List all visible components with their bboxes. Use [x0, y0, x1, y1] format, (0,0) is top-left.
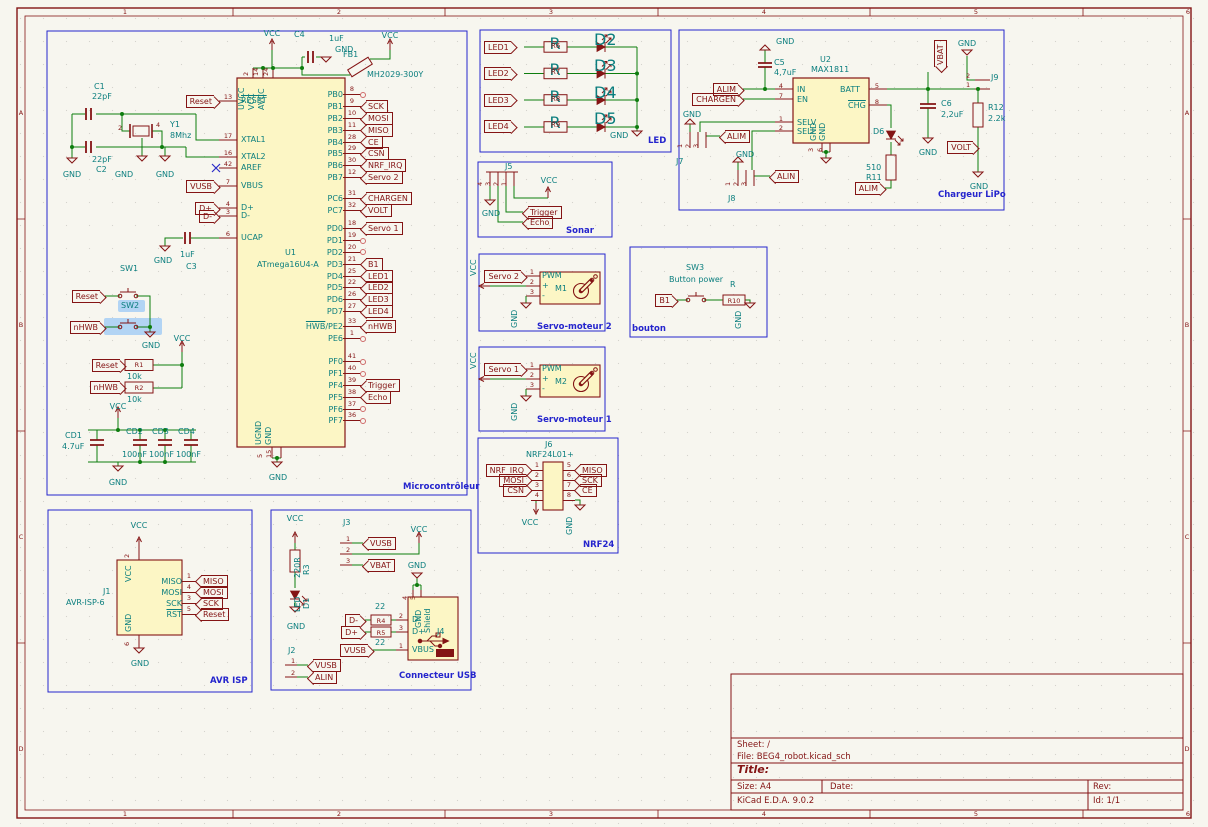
pin-stub: 30: [343, 165, 361, 166]
c3-value[interactable]: 1uF: [180, 250, 195, 260]
r5-ref[interactable]: R5: [377, 629, 386, 637]
section-title-nrf24[interactable]: NRF24: [583, 540, 614, 550]
pin-name: XTAL1: [241, 135, 266, 145]
gnd-net: GND: [776, 37, 794, 47]
frame-col: 2: [337, 810, 341, 818]
r4-ref[interactable]: R4: [377, 617, 386, 625]
pin-row[interactable]: PD321B1: [281, 258, 403, 270]
j6-value[interactable]: NRF24L01+: [526, 450, 574, 460]
pin-stub: 11: [343, 130, 361, 131]
resistor-ref[interactable]: R8: [544, 95, 567, 103]
net-label-nhwb[interactable]: nHWB: [70, 321, 100, 334]
gnd-net: GND: [287, 622, 305, 632]
gnd-symbol[interactable]: [923, 138, 933, 143]
pin-number: 4: [401, 596, 409, 600]
servo1-wires[interactable]: [490, 379, 526, 396]
net-label-servo1[interactable]: Servo 1: [484, 363, 521, 376]
frame-row: A: [19, 109, 23, 117]
vcc-symbol[interactable]: [479, 377, 490, 382]
c5-ref[interactable]: C5: [774, 58, 785, 68]
vcc-net: VCC: [131, 521, 148, 531]
pin-name: SCK: [140, 599, 182, 608]
vcc-net: VCC: [382, 31, 399, 41]
cd1-ref[interactable]: CD1: [65, 431, 82, 441]
r4-value[interactable]: 22: [375, 602, 385, 612]
sw2-ref[interactable]: SW2: [121, 301, 139, 311]
y1-ref[interactable]: Y1: [170, 120, 180, 130]
sw3-value[interactable]: Button power: [669, 275, 723, 285]
pin-name: PB5: [281, 149, 343, 158]
net-label-reset[interactable]: Reset: [92, 359, 120, 372]
c1-value[interactable]: 22pF: [92, 92, 112, 102]
r11-value[interactable]: 510: [866, 163, 881, 173]
sw3-ref[interactable]: SW3: [686, 263, 704, 273]
frame-col: 6: [1186, 810, 1190, 818]
vcc-net: VCC: [287, 514, 304, 524]
j6-ref[interactable]: J6: [545, 440, 552, 450]
gnd-symbol[interactable]: [521, 396, 531, 401]
c2-ref[interactable]: C2: [96, 165, 107, 175]
mcu-pin-group-pe: HWB/PE233nHWBPE61: [281, 321, 396, 345]
pin-number: 2: [732, 182, 740, 186]
d6-ref[interactable]: D6: [873, 127, 884, 137]
gnd-symbol[interactable]: [575, 505, 585, 510]
sw1-ref[interactable]: SW1: [120, 264, 138, 274]
net-label[interactable]: Servo 1: [366, 222, 403, 235]
led-row[interactable]: LED1RR6D2: [482, 34, 668, 61]
gnd-symbol[interactable]: [821, 158, 831, 163]
frame-row: D: [1184, 745, 1189, 753]
r10-value[interactable]: R: [730, 280, 736, 290]
pin-row[interactable]: PD220: [281, 247, 403, 259]
resistor-ref[interactable]: R6: [544, 42, 567, 50]
cd2-ref[interactable]: CD2: [126, 427, 143, 437]
pin-row[interactable]: 4: [459, 495, 543, 505]
pin-stub: 4: [182, 592, 196, 593]
pin-name: PF7: [281, 416, 343, 425]
pin-number: 3: [692, 144, 700, 148]
pin-name: +: [542, 374, 549, 384]
vcc-symbol[interactable]: [546, 187, 551, 198]
gnd-symbol[interactable]: [973, 172, 983, 177]
pin-name: PD0: [281, 224, 343, 233]
pin-row[interactable]: PD018Servo 1: [281, 223, 403, 235]
pin-name: D-: [241, 211, 250, 221]
net-label[interactable]: nHWB: [366, 320, 396, 333]
fb1-value[interactable]: MH2029-300Y: [367, 70, 423, 80]
section-title-usb[interactable]: Connecteur USB: [399, 671, 477, 681]
pin-row[interactable]: PD425LED1: [281, 270, 403, 282]
r1-ref[interactable]: R1: [135, 361, 144, 369]
gnd-net: GND: [156, 170, 174, 180]
u2-ref[interactable]: U2: [820, 55, 831, 65]
cd2-value[interactable]: 100nF: [122, 450, 147, 460]
net-label-vbat[interactable]: VBAT: [934, 40, 947, 67]
pin-name: PF6: [281, 405, 343, 414]
net-label-dplus[interactable]: D+: [341, 626, 360, 639]
pin-number: 3: [530, 288, 534, 296]
pin-stub: 10: [343, 118, 361, 119]
section-title-avrisp[interactable]: AVR ISP: [210, 676, 248, 686]
net-label[interactable]: LED2: [484, 67, 511, 80]
section-title-bouton[interactable]: bouton: [632, 324, 666, 334]
resistor-ref[interactable]: R9: [544, 121, 567, 129]
pin-stub: 22: [343, 287, 361, 288]
pin-row[interactable]: PD626LED3: [281, 294, 403, 306]
net-label-echo[interactable]: Echo: [528, 216, 553, 229]
pin-row[interactable]: PD522LED2: [281, 282, 403, 294]
c4-value[interactable]: 1uF: [329, 34, 344, 44]
pin-name: AREF: [241, 163, 262, 173]
pin-stub: 18: [343, 228, 361, 229]
vcc-net: VCC: [541, 176, 558, 186]
net-label-vbat[interactable]: VBAT: [368, 559, 395, 572]
j5-ref[interactable]: J5: [505, 162, 512, 172]
pin-stub: 29: [343, 153, 361, 154]
pin-row[interactable]: PE61: [281, 333, 396, 345]
diode-ref[interactable]: D5: [594, 109, 617, 128]
frame-col: 1: [123, 8, 127, 16]
vcc-symbol[interactable]: [270, 39, 275, 50]
pin-number: 14: [252, 68, 260, 76]
pin-number: 3: [807, 148, 815, 152]
pin-row[interactable]: HWB/PE233nHWB: [281, 321, 396, 333]
mcu-pin-group-pd: PD018Servo 1PD119PD220PD321B1PD425LED1PD…: [281, 223, 403, 317]
gnd-symbol[interactable]: [160, 156, 170, 161]
c4-ref[interactable]: C4: [294, 30, 305, 40]
net-label-chargen[interactable]: CHARGEN: [692, 93, 738, 106]
led-rows: LED1RR6D2LED2RR7D3LED3RR8D4LED4RR9D5: [482, 34, 668, 140]
gnd-net: GND: [510, 310, 520, 328]
gnd-symbol[interactable]: [137, 156, 147, 161]
led-row[interactable]: LED3RR8D4: [482, 87, 668, 114]
vcc-net: VCC: [522, 518, 539, 528]
gnd-net: GND: [109, 478, 127, 488]
pin-name: IN: [797, 85, 805, 95]
mcu-pin-group-pb: PB08PB19SCKPB210MOSIPB311MISOPB428CEPB52…: [281, 89, 406, 183]
pin-stub: 1: [343, 338, 361, 339]
net-label-b1[interactable]: B1: [655, 294, 672, 307]
net-label[interactable]: VOLT: [366, 204, 392, 217]
net-label[interactable]: LED3: [484, 94, 511, 107]
c5-value[interactable]: 4,7uF: [774, 68, 796, 78]
pin-row[interactable]: PF140: [281, 368, 400, 380]
pin-stub: 26: [343, 299, 361, 300]
r5-value[interactable]: 22: [375, 638, 385, 648]
y1-crystal[interactable]: [130, 124, 152, 138]
net-label-servo2[interactable]: Servo 2: [484, 270, 521, 283]
pin-row[interactable]: RST5Reset: [140, 609, 229, 620]
pin-row[interactable]: PB712Servo 2: [281, 172, 406, 184]
gnd-symbol[interactable]: [113, 466, 123, 471]
j4-ref[interactable]: J4: [437, 627, 444, 637]
vcc-symbol[interactable]: [479, 284, 490, 289]
pin-number: 2: [530, 278, 534, 286]
pin-number: 5: [875, 82, 879, 90]
pin-name: BATT: [840, 85, 860, 95]
m2-ref[interactable]: M2: [555, 377, 567, 387]
pin-name: CHG: [848, 101, 866, 111]
net-label[interactable]: CSN: [503, 484, 526, 497]
pin-name: PF1: [281, 369, 343, 378]
pin-name: PF4: [281, 381, 343, 390]
c2-value[interactable]: 22pF: [92, 155, 112, 165]
gnd-symbol[interactable]: [160, 246, 170, 251]
led-row[interactable]: LED4RR9D5: [482, 113, 668, 140]
pin-name: PD3: [281, 260, 343, 269]
fb1-ref[interactable]: FB1: [343, 50, 358, 60]
vcc-net: VCC: [469, 352, 479, 369]
pin-number: 7: [226, 178, 230, 186]
resistor-ref[interactable]: R7: [544, 68, 567, 76]
net-label-alin[interactable]: ALIN: [775, 170, 799, 183]
frame-col: 6: [1186, 8, 1190, 16]
pin-number: 17: [224, 132, 232, 140]
j8-ref[interactable]: J8: [728, 194, 735, 204]
date-field: Date:: [830, 782, 853, 792]
led-diode-d6[interactable]: [886, 131, 903, 145]
pin-number: 2: [492, 182, 500, 186]
diode-ref[interactable]: D3: [594, 56, 617, 75]
gnd-net: GND: [482, 209, 500, 219]
gnd-net: GND: [115, 170, 133, 180]
pin-name: MISO: [140, 577, 182, 586]
led-row[interactable]: LED2RR7D3: [482, 60, 668, 87]
pin-number: 2: [242, 72, 250, 76]
pin-name: XTAL2: [241, 152, 266, 162]
pin-number: 3: [530, 381, 534, 389]
vcc-symbol[interactable]: [293, 532, 298, 543]
pin-name: RST: [140, 610, 182, 619]
net-label-volt[interactable]: VOLT: [947, 141, 973, 154]
pin-number: 1: [530, 268, 534, 276]
pin-row[interactable]: PF637: [281, 403, 400, 415]
pin-number: 4: [779, 82, 783, 90]
pin-number: 6: [226, 230, 230, 238]
net-label-nhwb[interactable]: nHWB: [90, 381, 120, 394]
pin-number: 2: [291, 669, 295, 677]
no-connect-x[interactable]: [212, 164, 220, 172]
r2-ref[interactable]: R2: [135, 384, 144, 392]
c3-ref[interactable]: C3: [186, 262, 197, 272]
gnd-net: GND: [408, 561, 426, 571]
cd3-ref[interactable]: CD3: [152, 427, 169, 437]
cd1-value[interactable]: 4.7uF: [62, 442, 84, 452]
c6-value[interactable]: 2,2uF: [941, 110, 963, 120]
pin-name: PB7: [281, 173, 343, 182]
diode-ref[interactable]: D4: [594, 83, 617, 102]
net-label[interactable]: LED4: [366, 305, 393, 318]
net-label[interactable]: LED4: [484, 120, 511, 133]
title-block-frame: [731, 674, 1183, 810]
r12-value[interactable]: 2.2k: [988, 114, 1005, 124]
pin-name: PD4: [281, 272, 343, 281]
pin-name: PE6: [281, 334, 343, 343]
pin-number: 1: [399, 642, 403, 650]
net-label-vbat-wrap: VBAT: [928, 40, 947, 72]
servo2-wires[interactable]: [490, 286, 526, 303]
vcc-symbol[interactable]: [137, 537, 142, 548]
frame-row: A: [1185, 109, 1189, 117]
r1-value[interactable]: 10k: [127, 372, 142, 382]
sw1-switch[interactable]: [118, 288, 138, 298]
junction-dot: [415, 583, 419, 587]
pin-name: PC6: [281, 194, 343, 203]
pin-row[interactable]: PF041: [281, 356, 400, 368]
net-label-reset[interactable]: Reset: [186, 95, 214, 108]
pin-row[interactable]: PF736: [281, 415, 400, 427]
net-label[interactable]: Echo: [366, 391, 391, 404]
r2-value[interactable]: 10k: [127, 395, 142, 405]
net-label-alim[interactable]: ALIM: [725, 130, 750, 143]
pin-stub: 38: [343, 397, 361, 398]
j6-body[interactable]: [543, 462, 563, 510]
net-label-dminus[interactable]: D-: [199, 210, 214, 223]
vcc-net: VCC: [174, 334, 191, 344]
r12-resistor[interactable]: [973, 103, 983, 127]
pin-number: 7: [779, 92, 783, 100]
pin-name: UGND: [254, 421, 264, 445]
pin-number: 24: [262, 68, 270, 76]
vcc-net: VCC: [411, 525, 428, 535]
section-title-sonar[interactable]: Sonar: [566, 226, 594, 236]
frame-col: 5: [974, 810, 978, 818]
c6-ref[interactable]: C6: [941, 99, 952, 109]
pin-row[interactable]: PC732VOLT: [281, 205, 412, 217]
net-label[interactable]: Servo 2: [366, 171, 403, 184]
gnd-symbol[interactable]: [67, 158, 77, 163]
pin-row[interactable]: PD727LED4: [281, 306, 403, 318]
j2-ref[interactable]: J2: [288, 646, 295, 656]
pin-name: PWM: [542, 271, 562, 281]
pin-stub: 41: [343, 361, 361, 362]
sw3-switch[interactable]: [686, 292, 706, 302]
pin-row[interactable]: PF538Echo: [281, 391, 400, 403]
j9-ref[interactable]: J9: [991, 73, 998, 83]
pin-number: 1: [500, 182, 508, 186]
pin-stub: 9: [343, 106, 361, 107]
section-title-servo1[interactable]: Servo-moteur 1: [537, 415, 612, 425]
gnd-symbol[interactable]: [745, 303, 755, 308]
frame-col: 5: [974, 8, 978, 16]
d1-ref[interactable]: D1: [302, 598, 312, 609]
j3-ref[interactable]: J3: [343, 518, 350, 528]
u2-value[interactable]: MAX1811: [811, 65, 849, 75]
m1-ref[interactable]: M1: [555, 284, 567, 294]
pin-name: GND: [264, 427, 274, 445]
r3-ref[interactable]: R3: [302, 564, 312, 575]
gnd-symbol[interactable]: [760, 45, 770, 50]
pin-number: 1: [779, 115, 783, 123]
pin-number: 4: [226, 200, 230, 208]
net-label-vusb[interactable]: VUSB: [186, 180, 214, 193]
mcu-pin-group-pc: PC631CHARGENPC732VOLT: [281, 193, 412, 217]
net-label-alim[interactable]: ALIM: [855, 182, 880, 195]
pin-stub: 4: [531, 500, 543, 501]
vcc-net: VCC: [110, 402, 127, 412]
net-label-reset[interactable]: Reset: [72, 290, 100, 303]
pin-number: 3: [346, 557, 350, 565]
pin-row[interactable]: PF439Trigger: [281, 380, 400, 392]
pin-number: 13: [224, 93, 232, 101]
gnd-net: GND: [683, 110, 701, 120]
pin-number: 2: [346, 546, 350, 554]
pin-row[interactable]: PD119: [281, 235, 403, 247]
pin-stub: 36: [343, 420, 361, 421]
cd4-value[interactable]: 100nF: [176, 450, 201, 460]
gnd-symbol[interactable]: [521, 303, 531, 308]
gnd-net: GND: [131, 659, 149, 669]
gnd-symbol[interactable]: [485, 200, 495, 205]
pin-number: 4: [156, 121, 160, 129]
mcu-pin-group-pf: PF041PF140PF439TriggerPF538EchoPF637PF73…: [281, 356, 400, 427]
net-label-alin[interactable]: ALIN: [313, 671, 337, 684]
pin-number: 2: [118, 124, 122, 132]
r12-ref[interactable]: R12: [988, 103, 1004, 113]
cd4-ref[interactable]: CD4: [178, 427, 195, 437]
diode-ref[interactable]: D2: [594, 30, 617, 49]
vcc-net: VCC: [264, 29, 281, 39]
r11-resistor[interactable]: [886, 155, 896, 180]
pin-number: 2: [399, 612, 403, 620]
kicad-schematic-canvas[interactable]: 1 2 3 4 5 6 1 2 3 4 5 6 A B C D A B C D …: [0, 0, 1208, 827]
pin-number: 3: [399, 624, 403, 632]
gnd-net: GND: [142, 341, 160, 351]
j1-value[interactable]: AVR-ISP-6: [66, 598, 105, 608]
pin-stub: 40: [343, 373, 361, 374]
pin-row[interactable]: 8: [563, 495, 607, 505]
app-version: KiCad E.D.A. 9.0.2: [737, 796, 814, 806]
net-label[interactable]: CE: [580, 484, 597, 497]
r10-ref[interactable]: R10: [728, 297, 741, 305]
gnd-symbol[interactable]: [321, 57, 331, 62]
gnd-symbol[interactable]: [962, 50, 972, 55]
frame-col: 4: [762, 810, 766, 818]
pin-number: 2: [779, 124, 783, 132]
pin-name: GND: [124, 614, 134, 632]
c1-ref[interactable]: C1: [94, 82, 105, 92]
section-title-servo2[interactable]: Servo-moteur 2: [537, 322, 612, 332]
cd3-value[interactable]: 100nF: [149, 450, 174, 460]
y1-value[interactable]: 8Mhz: [170, 131, 191, 141]
pin-name: PD1: [281, 236, 343, 245]
pin-name: PB2: [281, 114, 343, 123]
isp-pin-rows: MISO1MISOMOSI4MOSISCK3SCKRST5Reset: [140, 575, 229, 620]
net-label-vusb[interactable]: VUSB: [368, 537, 396, 550]
gnd-net: GND: [565, 517, 575, 535]
pin-name: D-: [412, 615, 421, 625]
net-label-vusb[interactable]: VUSB: [340, 644, 368, 657]
pin-stub: 8: [343, 94, 361, 95]
net-label[interactable]: LED1: [484, 41, 511, 54]
gnd-net: GND: [736, 150, 754, 160]
j1-ref[interactable]: J1: [103, 587, 110, 597]
pin-number: 1: [346, 535, 350, 543]
pin-name: PB1: [281, 102, 343, 111]
gnd-symbol[interactable]: [412, 573, 422, 578]
pin-name: GND: [818, 123, 828, 141]
nrf-right-pins: 5MISO6SCK7CE8: [563, 465, 607, 505]
gnd-symbol[interactable]: [272, 462, 282, 467]
gnd-symbol[interactable]: [134, 648, 144, 653]
pin-name: VBUS: [241, 181, 263, 191]
net-label[interactable]: Reset: [201, 608, 229, 621]
pin-number: 2: [123, 554, 131, 558]
frame-row: B: [19, 321, 23, 329]
pin-number: 6: [816, 148, 824, 152]
j7-ref[interactable]: J7: [676, 157, 683, 167]
pin-number: 1: [291, 657, 295, 665]
